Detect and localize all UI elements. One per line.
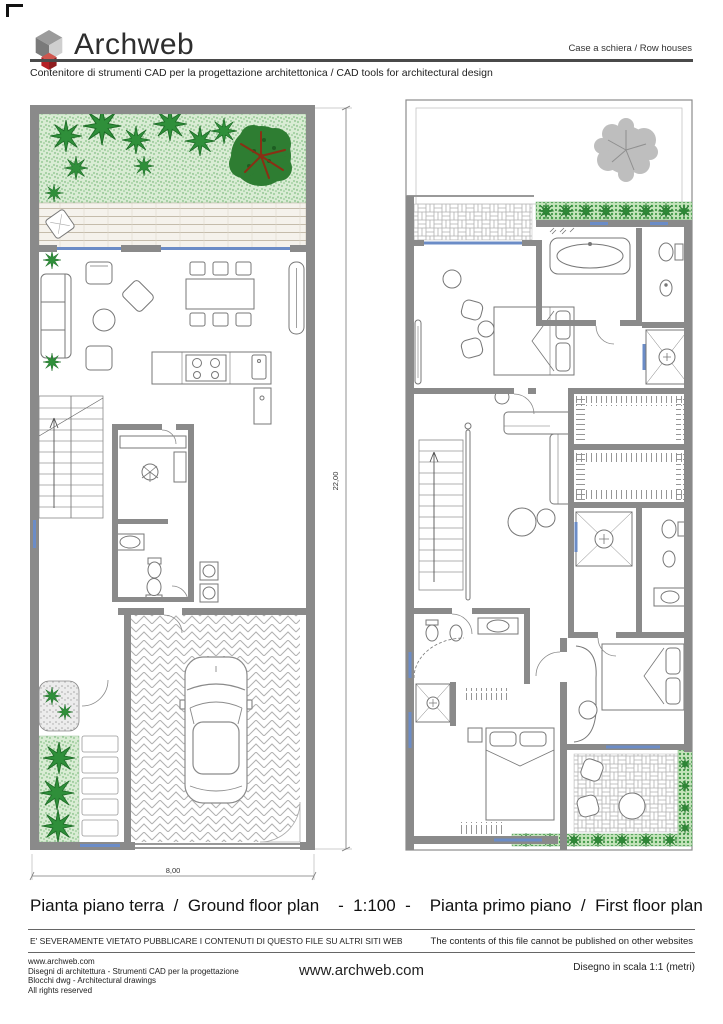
dimension-vertical: 22,00 (315, 106, 352, 851)
kitchen-counter (152, 352, 271, 424)
hedge-top (536, 202, 692, 220)
ground-bathroom (116, 534, 218, 602)
garden-area (39, 107, 306, 203)
dim-height-label: 22,00 (331, 472, 340, 491)
garden-tree-grey-icon (594, 118, 658, 182)
garage-door (135, 844, 300, 848)
dimension-horizontal: 8,00 (30, 854, 316, 880)
site-tagline: Contenitore di strumenti CAD per la prog… (30, 67, 493, 79)
shower-top (646, 330, 688, 384)
deck-patio (39, 203, 306, 248)
dim-width-label: 8,00 (166, 866, 181, 875)
drawing-sheet: Archweb Case a schiera / Row houses Cont… (0, 0, 723, 1024)
corner-crop-mark (6, 4, 23, 17)
notice-english: The contents of this file cannot be publ… (431, 936, 695, 947)
bathroom-right (654, 520, 686, 606)
study-room (120, 430, 186, 482)
master-bedroom (415, 270, 574, 384)
footer-line: www.archweb.com (28, 957, 299, 967)
terrace-top (406, 196, 534, 240)
car (180, 657, 252, 803)
stairs (39, 396, 103, 518)
shower-mid (576, 512, 632, 566)
bedroom-left (458, 688, 554, 834)
footer-line: Blocchi dwg - Architectural drawings (28, 976, 299, 986)
stairs-first (419, 423, 471, 600)
footer-line: Disegni di architettura - Strumenti CAD … (28, 967, 299, 977)
footer-scale-note: Disegno in scala 1:1 (metri) (424, 962, 695, 973)
bathroom-top (550, 228, 683, 296)
living-room-furniture (41, 251, 155, 371)
dining-set (186, 262, 304, 334)
footer: www.archweb.com Disegni di architettura … (28, 957, 695, 995)
footer-credits: www.archweb.com Disegni di architettura … (28, 957, 299, 995)
brand-title: Archweb (74, 28, 194, 62)
entry-path (39, 680, 118, 842)
first-floor-plan (394, 92, 706, 882)
footer-line: All rights reserved (28, 986, 299, 996)
category-label: Case a schiera / Row houses (568, 43, 692, 54)
notice-italian: E' SEVERAMENTE VIETATO PUBBLICARE I CONT… (28, 936, 403, 946)
door-arcs (452, 326, 616, 676)
notice-bar: E' SEVERAMENTE VIETATO PUBBLICARE I CONT… (28, 929, 695, 953)
ground-floor-plan: 22,00 8,00 (24, 96, 376, 894)
header-rule (30, 59, 693, 62)
garage (131, 615, 300, 848)
footer-url: www.archweb.com (299, 962, 424, 979)
bedroom-right (574, 644, 684, 742)
bathroom-bottom-left (414, 618, 518, 722)
sheet-caption: Pianta piano terra / Ground floor plan -… (30, 896, 693, 916)
